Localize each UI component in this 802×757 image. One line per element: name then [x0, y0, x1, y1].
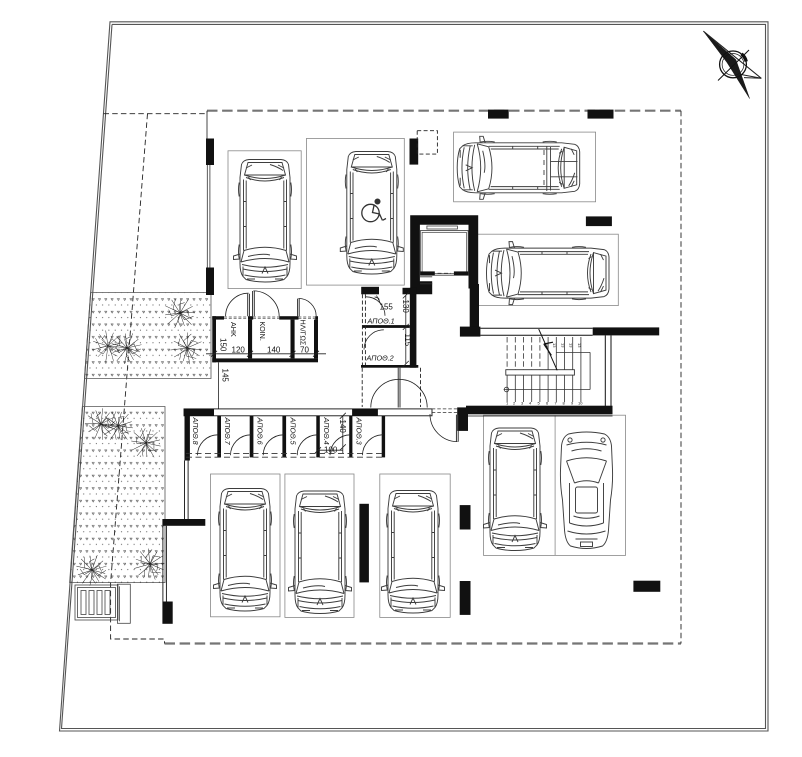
svg-text:ΑΠΟΘ.4: ΑΠΟΘ.4	[322, 417, 331, 445]
svg-text:ΑΗΚ: ΑΗΚ	[229, 322, 238, 337]
svg-text:ΑΠΟΘ.3: ΑΠΟΘ.3	[355, 417, 364, 445]
svg-text:140: 140	[267, 345, 281, 354]
svg-text:13: 13	[577, 343, 582, 348]
svg-text:145: 145	[221, 369, 230, 383]
svg-text:ΑΠΟΘ.7: ΑΠΟΘ.7	[223, 417, 232, 446]
svg-text:120: 120	[232, 345, 246, 354]
svg-text:ΚΟΙΝ.: ΚΟΙΝ.	[258, 322, 267, 341]
svg-text:13: 13	[552, 343, 557, 348]
svg-text:ΑΠΟΘ.1: ΑΠΟΘ.1	[367, 317, 395, 326]
svg-text:150: 150	[219, 338, 228, 352]
svg-text:155: 155	[380, 303, 394, 312]
svg-text:115: 115	[403, 334, 412, 347]
svg-text:ΑΠΟΘ.6: ΑΠΟΘ.6	[256, 417, 265, 445]
svg-text:10: 10	[578, 401, 583, 406]
svg-text:ΗΛ/ΓΩΣ: ΗΛ/ΓΩΣ	[299, 320, 308, 346]
svg-text:70: 70	[300, 345, 309, 354]
svg-text:ΑΠΟΘ.5: ΑΠΟΘ.5	[289, 417, 298, 446]
svg-text:13: 13	[561, 343, 566, 348]
svg-text:13: 13	[544, 343, 549, 348]
svg-text:13: 13	[569, 343, 574, 348]
svg-text:ΑΠΟΘ.8: ΑΠΟΘ.8	[191, 417, 200, 445]
svg-text:ΑΠΟΘ.2: ΑΠΟΘ.2	[366, 354, 394, 363]
